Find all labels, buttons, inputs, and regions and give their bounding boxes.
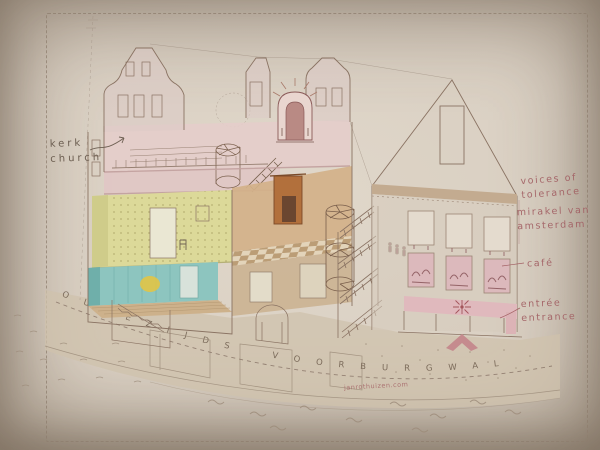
chartreuse-room — [92, 190, 232, 268]
label-mirakel-van-amsterdam: mirakel van amsterdam — [517, 204, 591, 235]
right-building — [372, 80, 522, 351]
label-kerk-church: kerk church — [49, 135, 102, 167]
label-mirakel-line2: amsterdam — [517, 218, 591, 235]
teal-room — [88, 262, 218, 306]
museum-building-cutaway — [88, 48, 354, 348]
label-entree-entrance: entrée entrance — [521, 296, 577, 326]
label-entree-line2: entrance — [521, 310, 577, 326]
label-cafe-text: café — [527, 257, 554, 272]
upper-windows — [408, 211, 510, 251]
cutaway-illustration: OUDEZIJDS VOORBURGWAL — [0, 0, 600, 450]
hearth-room — [232, 166, 352, 316]
label-cafe: café — [527, 257, 554, 272]
lamp-glow — [140, 276, 160, 292]
photographed-paper: OUDEZIJDS VOORBURGWAL — [0, 0, 600, 450]
label-voices-of-tolerance: voices of tolerance — [520, 171, 581, 204]
label-kerk-line2: church — [50, 150, 102, 167]
